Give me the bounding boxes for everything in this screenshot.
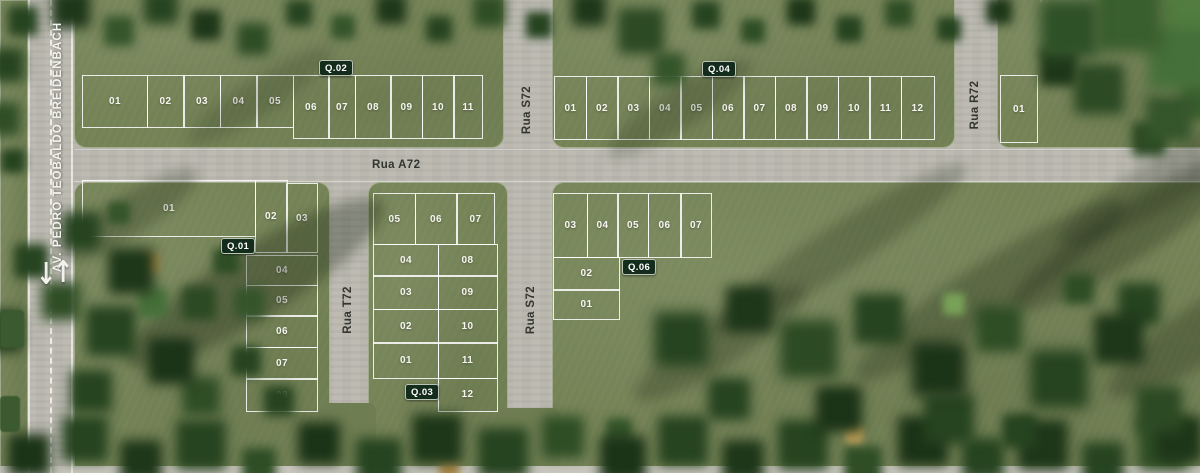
street-label-rua-a72: Rua A72 <box>372 157 436 173</box>
lot-cell: 09 <box>390 75 423 139</box>
lot-cell: 01 <box>373 342 439 379</box>
badge-q02: Q.02 <box>319 60 353 76</box>
tree-cluster-bottomright <box>640 280 642 282</box>
tree-cluster-top <box>0 0 2 2</box>
badge-q01: Q.01 <box>221 238 255 254</box>
lot-cell: 07 <box>456 193 495 245</box>
lot-cell: 10 <box>438 309 498 344</box>
hedge <box>0 310 24 348</box>
lot-cell: 10 <box>422 75 455 139</box>
road-edge-line <box>28 0 30 473</box>
lot-cell: 01 <box>554 76 587 140</box>
lot-cell: 08 <box>246 378 318 412</box>
lot-cell: 11 <box>453 75 483 139</box>
lane-arrow-up-icon: ↑ <box>53 255 73 290</box>
grass-patch <box>322 403 376 471</box>
avenue-label: AV. PEDRO TEOBALDO BREIDENBACH <box>50 42 66 272</box>
lot-cell: 07 <box>246 347 318 380</box>
lot-cell: 08 <box>775 76 808 140</box>
lot-cell: 01 <box>553 289 620 320</box>
block-q03-toprow: 05 06 07 <box>373 193 495 245</box>
tree-cluster-topright <box>1040 0 1042 2</box>
badge-q04: Q.04 <box>702 61 736 77</box>
street-label-rua-r72: Rua R72 <box>967 65 983 145</box>
street-label-rua-s72-bottom: Rua S72 <box>523 270 539 350</box>
block-q03-leftcol: 04 03 02 01 <box>373 244 439 380</box>
lot-cell: 11 <box>869 76 902 140</box>
grass-patch <box>498 408 560 470</box>
block-q03-rightcol: 08 09 10 11 12 <box>438 244 498 412</box>
lot-cell: 03 <box>553 193 588 258</box>
block-q06-toprow: 03 04 05 06 07 <box>553 193 712 258</box>
badge-q06: Q.06 <box>622 259 656 275</box>
hedge <box>0 396 20 432</box>
tree-cluster-left <box>40 190 42 192</box>
lot-cell: 06 <box>648 193 682 258</box>
lot-cell: 02 <box>147 75 185 128</box>
lot-cell: 02 <box>373 309 439 344</box>
lot-cell: 09 <box>438 275 498 310</box>
lot-cell: 07 <box>743 76 776 140</box>
street-label-rua-s72-top: Rua S72 <box>519 70 535 150</box>
lot-cell: 01 <box>1000 75 1038 143</box>
lot-cell: 01 <box>82 75 148 128</box>
lot-cell: 04 <box>373 244 439 277</box>
lot-cell: 10 <box>838 76 871 140</box>
lot-cell: 07 <box>680 193 712 258</box>
block-q04: 01 02 03 04 05 06 07 08 09 10 11 12 <box>554 76 935 140</box>
lot-cell: 08 <box>355 75 392 139</box>
street-label-rua-t72: Rua T72 <box>340 270 356 350</box>
lot-cell: 12 <box>438 378 498 412</box>
lot-cell: 11 <box>438 342 498 379</box>
lot-cell: 08 <box>438 244 498 277</box>
badge-q03: Q.03 <box>405 384 439 400</box>
block-q06-stack: 02 01 <box>553 257 620 321</box>
lot-cell: 07 <box>328 75 356 139</box>
lot-cell: 03 <box>373 275 439 310</box>
lot-cell: 09 <box>806 76 839 140</box>
lot-cell: 04 <box>587 193 619 258</box>
lot-cell: 02 <box>586 76 619 140</box>
bottom-road-strip <box>0 466 1200 473</box>
subdivision-masterplan-map: AV. PEDRO TEOBALDO BREIDENBACH ↓ ↑ Rua A… <box>0 0 1200 473</box>
lot-cell: 02 <box>553 257 620 291</box>
lot-cell: 05 <box>617 193 649 258</box>
lot-cell: 12 <box>901 76 935 140</box>
lot-cell: 06 <box>415 193 458 245</box>
